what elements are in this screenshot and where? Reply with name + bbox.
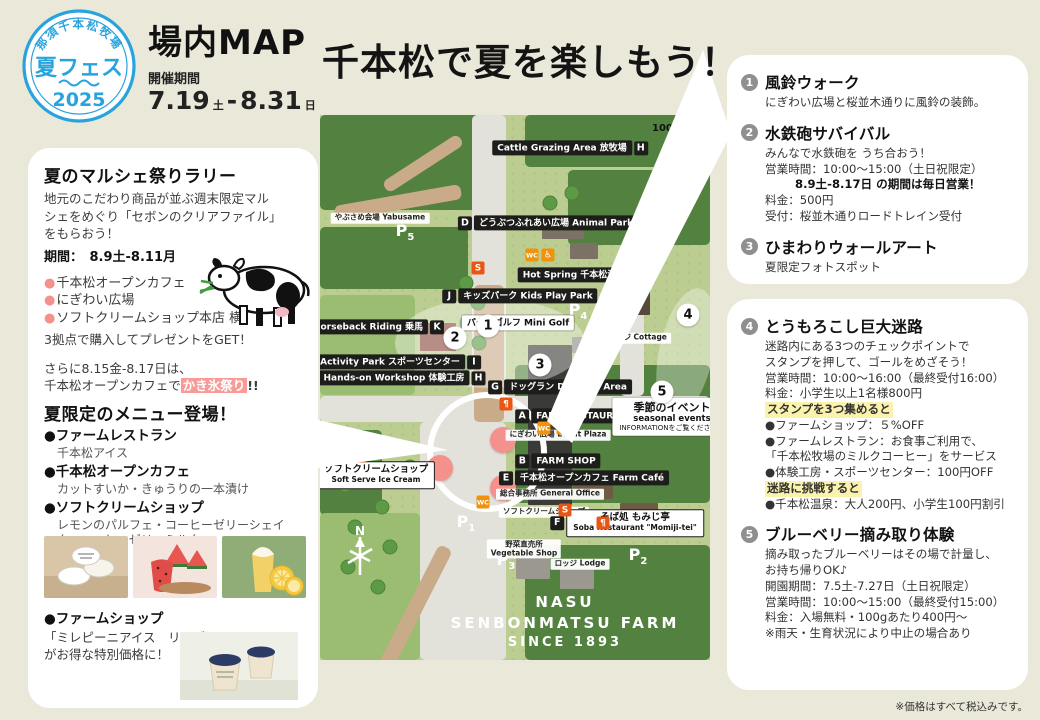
main-title: 千本松で夏を楽しもう！	[322, 32, 739, 86]
event-line: ●千本松温泉：大人200円、小学生100円割引	[765, 497, 1016, 513]
letter-badge: H	[634, 141, 648, 155]
map-label: 季節のイベントseasonal eventsINFORMATIONをご覧ください…	[612, 398, 710, 436]
event-line: スタンプを3つ集めると	[765, 402, 1016, 418]
event-line: 受付：桜並木通りロードトレイン受付	[765, 209, 1016, 225]
map-label: Jキッズパーク Kids Play Park	[442, 288, 597, 303]
badge-year: 2025	[53, 89, 106, 111]
event-body: 迷路内にある3つのチェックポイントでスタンプを押して、ゴールをめざそう！営業時間…	[765, 339, 1016, 512]
map-label-text: Horseback Riding 乗馬	[320, 319, 428, 334]
event-number: 2	[741, 124, 758, 141]
bullet-dot: ●	[44, 276, 55, 291]
cow-illustration	[194, 252, 316, 330]
map-label-text: そば処 もみじ亭Soba Restaurant "Momiji-tei"	[566, 509, 704, 537]
map-label: Hands-on Workshop 体験工房H	[320, 370, 486, 385]
event-line: 迷路内にある3つのチェックポイントで	[765, 339, 1016, 355]
restroom-icon: WC	[526, 249, 539, 262]
event-list: 4とうもろこし巨大迷路迷路内にある3つのチェックポイントでスタンプを押して、ゴー…	[741, 315, 1016, 653]
event-number: 5	[741, 526, 758, 543]
event-body: 摘み取ったブルーベリーはその場で計量し、お持ち帰りOK♪開園期間：7.5土-7.…	[765, 547, 1016, 642]
letter-badge: J	[442, 289, 456, 303]
map-label-text: ロッジ Lodge	[551, 559, 610, 570]
map-label: Hot Spring 千本松温泉L	[518, 267, 647, 282]
menu-item-name: ●千本松オープンカフェ	[44, 464, 304, 482]
event-dates: 7.19土 - 8.31日	[148, 87, 316, 115]
menu-photos	[44, 536, 306, 598]
period-label: 開催期間	[148, 68, 316, 87]
park-map: Cattle Grazing Area 放牧場Hやぶさめ会場 YabusameD…	[320, 115, 710, 660]
softserve-icon: S	[472, 262, 485, 275]
event-line: 料金：小学生以上1名様800円	[765, 386, 1016, 402]
event-line: ●ファームショップ：５%OFF	[765, 418, 1016, 434]
event-body: 夏限定フォトスポット	[765, 260, 1016, 276]
map-label-text: 千本松オープンカフェ Farm Café	[515, 470, 669, 485]
event-line: 「千本松牧場のミルクコーヒー」をサービス	[765, 449, 1016, 465]
svg-text:N: N	[355, 524, 365, 538]
map-label: コテージ Cottage	[597, 333, 671, 344]
wheelchair-icon: ♿	[557, 422, 570, 435]
map-label-text: ソフトクリームショップSoft Serve Ice Cream	[320, 461, 435, 489]
event-header: 2水鉄砲サバイバル	[741, 122, 1016, 144]
event-number: 3	[741, 238, 758, 255]
event-line: 8.9土-8.17日 の期間は毎日営業！	[765, 177, 1016, 193]
map-scale: 100m▲	[652, 123, 683, 145]
event-title: ブルーベリー摘み取り体験	[765, 523, 955, 545]
map-label-text: コテージ Cottage	[597, 333, 671, 344]
event-line: 営業時間：10:00〜15:00（最終受付15:00）	[765, 595, 1016, 611]
map-label-text: FARM SHOP	[531, 453, 600, 468]
event-line: スタンプを押して、ゴールをめざそう！	[765, 355, 1016, 371]
lemon-parfait-photo	[222, 536, 306, 598]
event-line: ※雨天・生育状況により中止の場合あり	[765, 626, 1016, 642]
event-body: にぎわい広場と桜並木通りに風鈴の装飾。	[765, 95, 1016, 111]
map-label: Horseback Riding 乗馬K	[320, 319, 444, 334]
event-header: 1風鈴ウォーク	[741, 71, 1016, 93]
menu-item-list: ●ファームレストラン千本松アイス●千本松オープンカフェカットすいか・きゅうりの一…	[44, 428, 304, 549]
map-number-5: 5	[651, 381, 674, 404]
map-label-text: Hands-on Workshop 体験工房	[320, 370, 470, 385]
letter-badge: I	[467, 355, 481, 369]
map-label: Dどうぶつふれあい広場 Animal Park	[458, 215, 638, 230]
map-label: 野菜直売所Vegetable Shop	[487, 539, 561, 558]
map-number-4: 4	[677, 304, 700, 327]
menu-item-desc: 千本松アイス	[57, 446, 304, 462]
event-line: 開園期間：7.5土-7.27日（土日祝限定）	[765, 579, 1016, 595]
bullet-dot: ●	[44, 293, 55, 308]
softserve-icon: S	[354, 450, 367, 463]
map-label-text: Cattle Grazing Area 放牧場	[492, 140, 632, 155]
rally-title: 夏のマルシェ祭りラリー	[44, 162, 304, 187]
map-label-text: キッズパーク Kids Play Park	[458, 288, 597, 303]
map-label-text: Hot Spring 千本松温泉	[518, 267, 631, 282]
events-panel-top: 1風鈴ウォークにぎわい広場と桜並木通りに風鈴の装飾。2水鉄砲サバイバルみんなで水…	[727, 55, 1028, 284]
event-list: 1風鈴ウォークにぎわい広場と桜並木通りに風鈴の装飾。2水鉄砲サバイバルみんなで水…	[741, 71, 1016, 286]
map-number-2: 2	[444, 327, 467, 350]
event-body: みんなで水鉄砲を うち合おう！営業時間：10:00〜15:00（土日祝限定）8.…	[765, 146, 1016, 225]
menu-section: 夏限定のメニュー登場！ ●ファームレストラン千本松アイス●千本松オープンカフェカ…	[44, 400, 304, 549]
map-label-text: 野菜直売所Vegetable Shop	[487, 539, 561, 558]
bullet-dot: ●	[44, 311, 55, 326]
map-label: CソフトクリームショップSoft Serve Ice Cream	[320, 461, 435, 489]
event-line: 料金：入場無料・100gあたり400円〜	[765, 610, 1016, 626]
letter-badge: K	[430, 320, 444, 334]
letter-badge: F	[550, 516, 564, 530]
event-number: 4	[741, 318, 758, 335]
milepini-ice-photo	[180, 632, 298, 700]
letter-badge: L	[632, 268, 646, 282]
event-line: にぎわい広場と桜並木通りに風鈴の装飾。	[765, 95, 1016, 111]
event-line: ●体験工房・スポーツセンター：100円OFF	[765, 465, 1016, 481]
map-label: E千本松オープンカフェ Farm Café	[499, 470, 669, 485]
badge-event-name: 夏フェス	[35, 56, 123, 81]
letter-badge: E	[499, 471, 513, 485]
rally-get-line: 3拠点で購入してプレゼントをGET！	[44, 329, 304, 348]
shop-name: ●ファームショップ	[44, 611, 304, 629]
ice-cream-cups-photo	[44, 536, 128, 598]
menu-title: 夏限定のメニュー登場！	[44, 400, 304, 425]
event-header: 5ブルーベリー摘み取り体験	[741, 523, 1016, 545]
farm-sign: NASU SENBONMATSU FARM SINCE 1893	[450, 593, 680, 650]
event-line: みんなで水鉄砲を うち合おう！	[765, 146, 1016, 162]
softserve-icon: S	[559, 504, 572, 517]
event-line: 迷路に挑戦すると	[765, 481, 1016, 497]
map-label: Cattle Grazing Area 放牧場H	[492, 140, 648, 155]
event-badge: 那須千本松牧場 夏フェス 2025	[20, 7, 138, 125]
event-line: 夏限定フォトスポット	[765, 260, 1016, 276]
event-line: ●ファームレストラン：お食事ご利用で、	[765, 434, 1016, 450]
map-label: Activity Park スポーツセンターI	[320, 354, 481, 369]
map-label: Gドッグラン Dog Run Area	[488, 379, 632, 394]
event-item: 4とうもろこし巨大迷路迷路内にある3つのチェックポイントでスタンプを押して、ゴー…	[741, 315, 1016, 512]
event-item: 1風鈴ウォークにぎわい広場と桜並木通りに風鈴の装飾。	[741, 71, 1016, 111]
event-title: 風鈴ウォーク	[765, 71, 860, 93]
map-header: 場内MAP 開催期間 7.19土 - 8.31日	[148, 26, 316, 115]
rally-body: 地元のこだわり商品が並ぶ週末限定マル	[44, 190, 304, 208]
map-label: やぶさめ会場 Yabusame	[331, 213, 430, 224]
event-title: とうもろこし巨大迷路	[765, 315, 923, 337]
tax-note: ※価格はすべて税込みです。	[895, 699, 1028, 714]
letter-badge: D	[458, 216, 472, 230]
event-item: 3ひまわりウォールアート夏限定フォトスポット	[741, 236, 1016, 276]
event-number: 1	[741, 74, 758, 91]
map-number-1: 1	[477, 315, 500, 338]
compass-icon: N	[338, 523, 382, 579]
restaurant-icon: ¶	[597, 517, 610, 530]
map-label: 総合事務所 General Office	[496, 489, 604, 500]
kakigori-highlight: かき氷祭り	[181, 378, 248, 393]
map-number-3: 3	[529, 354, 552, 377]
rally-extra: さらに8.15金-8.17日は、 千本松オープンカフェでかき氷祭り!!	[44, 360, 304, 395]
event-title: 水鉄砲サバイバル	[765, 122, 890, 144]
event-line: 料金：500円	[765, 193, 1016, 209]
rally-body: シェをめぐり「セボンのクリアファイル」	[44, 208, 304, 226]
restaurant-icon: ¶	[500, 398, 513, 411]
event-header: 4とうもろこし巨大迷路	[741, 315, 1016, 337]
yellow-highlight: スタンプを3つ集めると	[765, 402, 893, 418]
map-label-text: 季節のイベントseasonal eventsINFORMATIONをご覧ください…	[612, 398, 710, 436]
menu-item-desc: カットすいか・きゅうりの一本漬け	[57, 482, 304, 498]
menu-item-name: ●ファームレストラン	[44, 428, 304, 446]
letter-badge: H	[472, 371, 486, 385]
map-label: BFARM SHOP	[515, 453, 600, 468]
map-label-text: Activity Park スポーツセンター	[320, 354, 465, 369]
restroom-icon: WC	[477, 496, 490, 509]
event-line: 摘み取ったブルーベリーはその場で計量し、	[765, 547, 1016, 563]
page-title: 場内MAP	[148, 26, 316, 60]
map-label: ロッジ Lodge	[551, 559, 610, 570]
yellow-highlight: 迷路に挑戦すると	[765, 481, 862, 497]
watermelon-cup-photo	[133, 536, 217, 598]
events-panel-bottom: 4とうもろこし巨大迷路迷路内にある3つのチェックポイントでスタンプを押して、ゴー…	[727, 299, 1028, 690]
menu-item-name: ●ソフトクリームショップ	[44, 500, 304, 518]
event-line: 営業時間：10:00〜15:00（土日祝限定）	[765, 162, 1016, 178]
map-label-text: どうぶつふれあい広場 Animal Park	[474, 215, 638, 230]
event-item: 2水鉄砲サバイバルみんなで水鉄砲を うち合おう！営業時間：10:00〜15:00…	[741, 122, 1016, 225]
letter-badge: B	[515, 454, 529, 468]
restroom-icon: WC	[538, 422, 551, 435]
map-label: Fそば処 もみじ亭Soba Restaurant "Momiji-tei"	[550, 509, 704, 537]
event-header: 3ひまわりウォールアート	[741, 236, 1016, 258]
wheelchair-icon: ♿	[542, 249, 555, 262]
event-line: お持ち帰りOK♪	[765, 563, 1016, 579]
map-label-text: 総合事務所 General Office	[496, 489, 604, 500]
map-label-text: やぶさめ会場 Yabusame	[331, 213, 430, 224]
event-item: 5ブルーベリー摘み取り体験摘み取ったブルーベリーはその場で計量し、お持ち帰りOK…	[741, 523, 1016, 642]
left-info-panel: 夏のマルシェ祭りラリー 地元のこだわり商品が並ぶ週末限定マル シェをめぐり「セボ…	[28, 148, 318, 708]
letter-badge: G	[488, 380, 502, 394]
letter-badge: A	[515, 409, 529, 423]
event-title: ひまわりウォールアート	[765, 236, 938, 258]
event-line: 営業時間：10:00〜16:00（最終受付16:00）	[765, 371, 1016, 387]
rally-body: をもらおう！	[44, 225, 304, 243]
map-label-text: ドッグラン Dog Run Area	[504, 379, 632, 394]
